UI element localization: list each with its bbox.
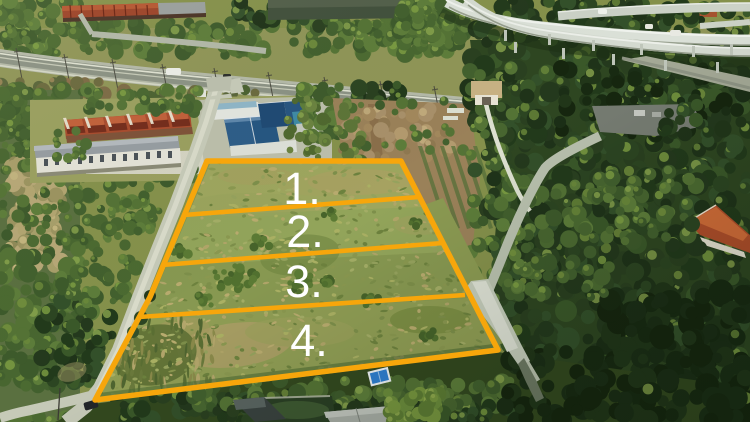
svg-text:2.: 2. [286,206,324,257]
svg-text:4.: 4. [290,315,328,366]
svg-text:3.: 3. [285,256,323,307]
